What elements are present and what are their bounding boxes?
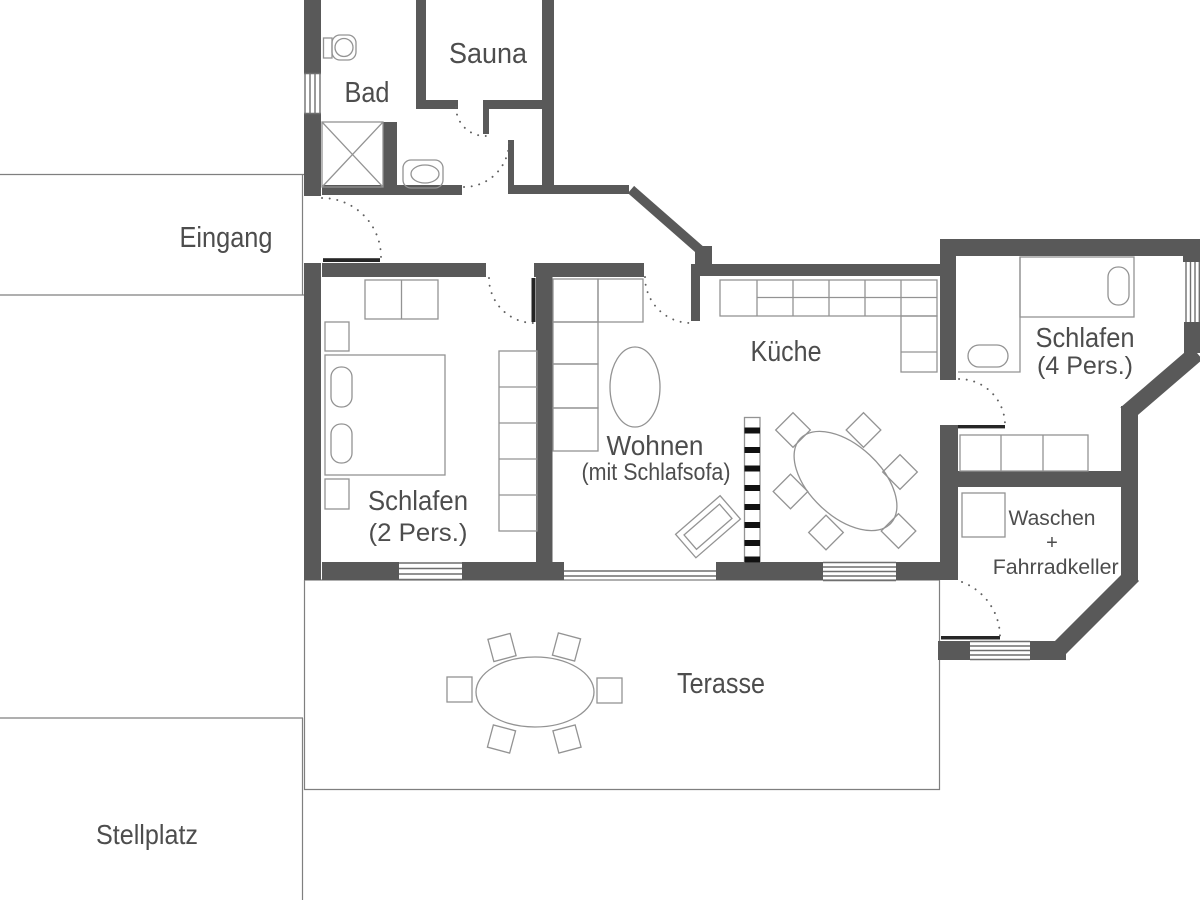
svg-text:Sauna: Sauna	[449, 38, 528, 70]
svg-text:Bad: Bad	[345, 77, 390, 109]
svg-text:Schlafen: Schlafen	[1036, 322, 1135, 353]
svg-text:(mit Schlafsofa): (mit Schlafsofa)	[582, 459, 731, 486]
svg-text:Wohnen: Wohnen	[607, 430, 704, 461]
svg-text:+: +	[1046, 532, 1058, 554]
svg-text:Terasse: Terasse	[677, 668, 765, 700]
svg-text:Fahrradkeller: Fahrradkeller	[993, 555, 1119, 579]
svg-text:(4 Pers.): (4 Pers.)	[1037, 352, 1133, 380]
svg-text:(2 Pers.): (2 Pers.)	[369, 519, 468, 547]
svg-text:Stellplatz: Stellplatz	[96, 819, 198, 850]
svg-text:Küche: Küche	[751, 336, 822, 368]
svg-text:Waschen: Waschen	[1009, 507, 1096, 530]
svg-text:Schlafen: Schlafen	[368, 485, 468, 516]
svg-text:Eingang: Eingang	[180, 222, 273, 254]
